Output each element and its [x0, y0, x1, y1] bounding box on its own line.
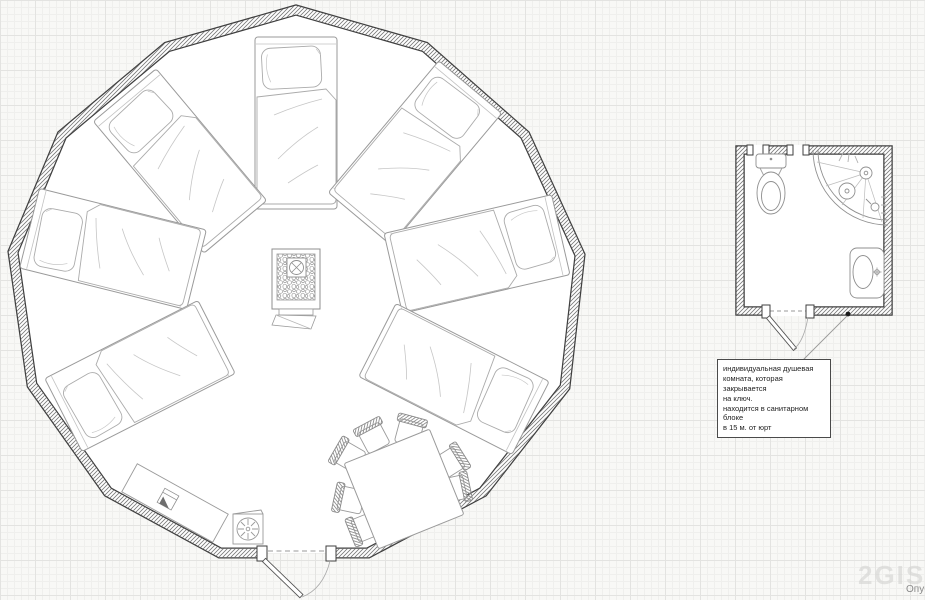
- annotation-line: индивидуальная душевая: [723, 364, 825, 374]
- bath-door-leaf: [766, 316, 796, 351]
- shower-head-icon: [860, 167, 872, 179]
- shower-drain: [839, 183, 855, 199]
- plan-drawing: [0, 0, 925, 600]
- door-lock-dot: [846, 312, 851, 317]
- annotation-line: в 15 м. от юрт: [723, 423, 825, 433]
- door-leaf: [262, 558, 302, 597]
- sink-basin: [853, 256, 873, 289]
- annotation-line: находится в санитарном блоке: [723, 404, 825, 424]
- door-swing-arc: [302, 561, 330, 597]
- yurt-plan: [13, 10, 580, 598]
- toilet-tank: [756, 154, 786, 168]
- stove-hearth: [272, 309, 316, 329]
- bed: [255, 37, 337, 209]
- wood-stove: [272, 249, 320, 329]
- bath-door-post-right: [806, 305, 814, 318]
- bath-door-arc: [794, 317, 808, 349]
- stove-chimney-icon: [287, 258, 306, 277]
- annotation-line: комната, которая закрывается: [723, 374, 825, 394]
- door-post-right: [326, 546, 336, 561]
- yurt-door: [257, 546, 336, 598]
- floor-plan-canvas: индивидуальная душевая комната, которая …: [0, 0, 925, 600]
- leader-line: [802, 316, 847, 361]
- fan-heater-unit: [233, 510, 263, 544]
- toilet: [756, 154, 786, 214]
- sink: [850, 248, 884, 298]
- annotation-note: индивидуальная душевая комната, которая …: [717, 359, 831, 438]
- bathroom-plan: [735, 145, 893, 350]
- watermark-caption: Опуб: [906, 584, 925, 595]
- annotation-line: на ключ.: [723, 394, 825, 404]
